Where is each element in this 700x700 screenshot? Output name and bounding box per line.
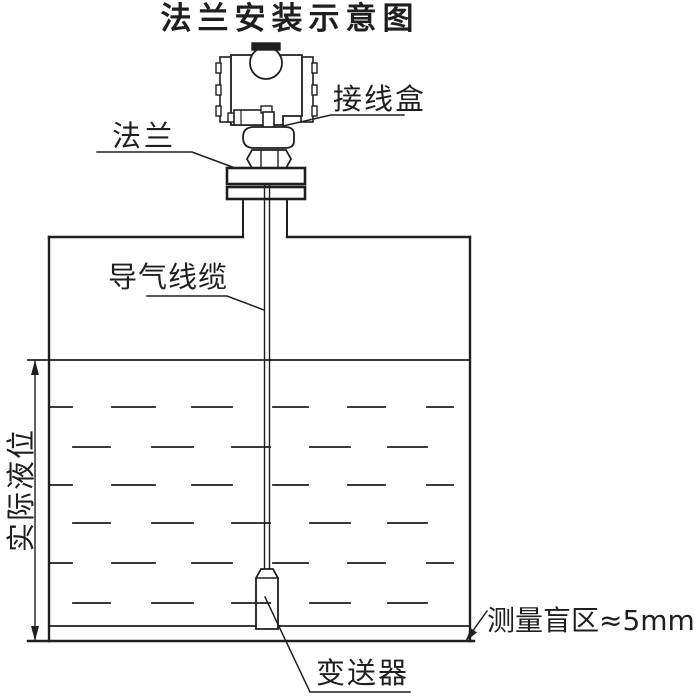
side-cap-right-rib [312,85,317,95]
display-cap-top [252,43,280,50]
side-cap-left-rib [216,63,221,73]
flange-leader [97,152,235,168]
neck-barrel [243,127,294,148]
level-dimension-arrow-up [31,360,39,375]
side-cap-left-rib [216,85,221,95]
air-cable-leader [147,296,264,310]
hex-nut [247,150,291,168]
label-blind-zone: 测量盲区≈5mm [487,606,695,637]
blind-zone-arrowhead [466,628,477,641]
label-flange: 法兰 [112,121,176,153]
air-guide-cable [265,184,270,569]
transmitter-head [216,43,317,168]
flange-installation-diagram: 法兰安装示意图 接线盒 法兰 导气线缆 实际液位 测量盲区≈5mm 变送器 [0,0,700,700]
display-cap [250,47,282,79]
diagram-title: 法兰安装示意图 [150,2,430,36]
label-air-cable: 导气线缆 [108,262,228,294]
label-junction-box: 接线盒 [333,84,426,116]
label-transmitter: 变送器 [316,658,409,690]
side-cap-right-rib [312,63,317,73]
nozzle-collar [227,187,305,199]
liquid-dashes [49,407,453,603]
side-cap-right-rib [312,106,317,116]
neck-connector [263,112,274,128]
level-dimension-arrow-down [31,626,39,641]
flange-plate [227,168,305,184]
label-actual-level: 实际液位 [6,415,38,565]
side-cap-left-rib [216,106,221,116]
